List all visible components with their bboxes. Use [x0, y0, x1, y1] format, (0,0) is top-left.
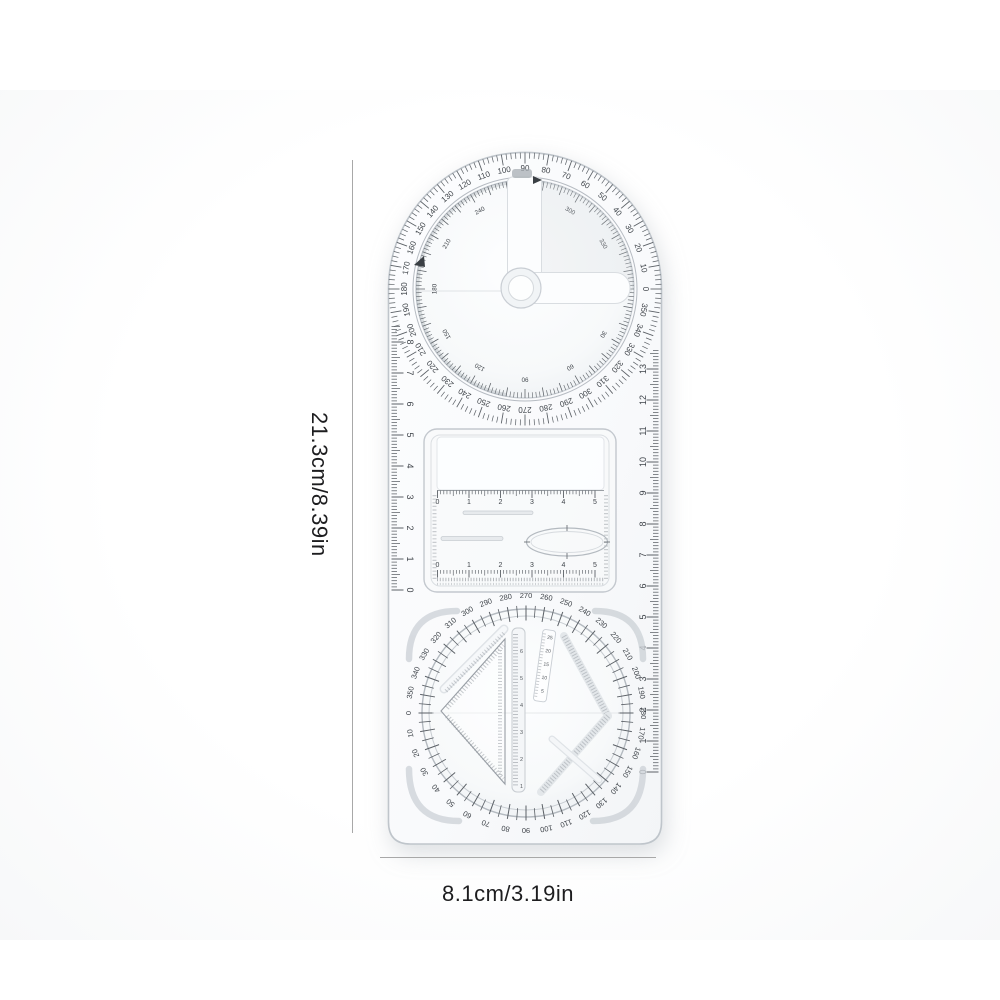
- ruler-number: 4: [520, 703, 523, 709]
- ruler-number: 8: [638, 521, 648, 526]
- degree-label: 270: [518, 405, 532, 414]
- scale-number: 0: [436, 499, 440, 506]
- mini-scale-number: 10: [541, 675, 548, 682]
- ruler-number: 6: [520, 649, 523, 655]
- mini-scale-number: 20: [545, 648, 552, 655]
- pointer-top-marker: [512, 169, 532, 178]
- product-photo: 9080706050403020100350340330320310300290…: [0, 0, 1000, 1000]
- ruler-number: 5: [638, 614, 648, 619]
- ruler-number: 5: [520, 676, 523, 682]
- ruler-number: 3: [405, 494, 415, 499]
- scale-number: 4: [562, 562, 566, 569]
- height-dimension-label: 21.3cm/8.39in: [306, 412, 332, 557]
- degree-label: 0: [404, 711, 413, 715]
- stencil-window: 012345 012345: [424, 429, 616, 592]
- scale-number: 2: [499, 562, 503, 569]
- ruler-number: 7: [405, 370, 415, 375]
- degree-label: 80: [501, 824, 511, 834]
- blank-panel: [437, 437, 604, 490]
- scale-number: 5: [593, 499, 597, 506]
- degree-label: 90: [522, 826, 530, 835]
- degree-label: 10: [405, 729, 415, 739]
- scale-number: 4: [562, 499, 566, 506]
- scale-number: 5: [593, 562, 597, 569]
- width-dimension-label: 8.1cm/3.19in: [442, 881, 574, 907]
- ruler-number: 6: [638, 583, 648, 588]
- ruler-number: 7: [638, 552, 648, 557]
- vertical-ruler-stencil: [512, 628, 525, 792]
- ruler-number: 9: [638, 490, 648, 495]
- degree-label: 90: [521, 376, 528, 383]
- scale-number: 3: [530, 562, 534, 569]
- degree-label: 0: [641, 287, 650, 292]
- degree-label: 270: [520, 591, 533, 600]
- center-knob-inner: [509, 276, 534, 301]
- ruler-number: 3: [520, 730, 523, 736]
- scale-number: 1: [467, 562, 471, 569]
- ruler-number: 4: [405, 463, 415, 468]
- geometric-ruler-product: 9080706050403020100350340330320310300290…: [388, 152, 661, 844]
- degree-label: 180: [639, 707, 648, 720]
- ruler-number: 0: [405, 587, 415, 592]
- ruler-number: 1: [405, 556, 415, 561]
- ruler-number: 12: [638, 395, 648, 405]
- ruler-number: 10: [638, 457, 648, 467]
- ruler-number: 2: [520, 757, 523, 763]
- line-slot: [463, 511, 533, 515]
- ruler-scene: 9080706050403020100350340330320310300290…: [0, 0, 1000, 1000]
- degree-label: 180: [400, 282, 409, 296]
- scale-number: 1: [467, 499, 471, 506]
- ruler-number: 1: [520, 784, 523, 790]
- degree-label: 180: [432, 283, 439, 294]
- mini-scale-number: 25: [547, 635, 554, 642]
- scale-number: 3: [530, 499, 534, 506]
- ruler-number: 13: [638, 364, 648, 374]
- ruler-number: 6: [405, 401, 415, 406]
- ruler-number: 8: [405, 339, 415, 344]
- line-slot: [441, 537, 503, 541]
- width-dimension-line: [380, 857, 656, 858]
- mini-scale-number: 15: [543, 662, 550, 669]
- ruler-number: 11: [638, 426, 648, 435]
- ruler-number: 2: [405, 525, 415, 530]
- ruler-number: 5: [405, 432, 415, 437]
- scale-number: 2: [499, 499, 503, 506]
- height-dimension-line: [352, 160, 353, 833]
- scale-number: 0: [436, 562, 440, 569]
